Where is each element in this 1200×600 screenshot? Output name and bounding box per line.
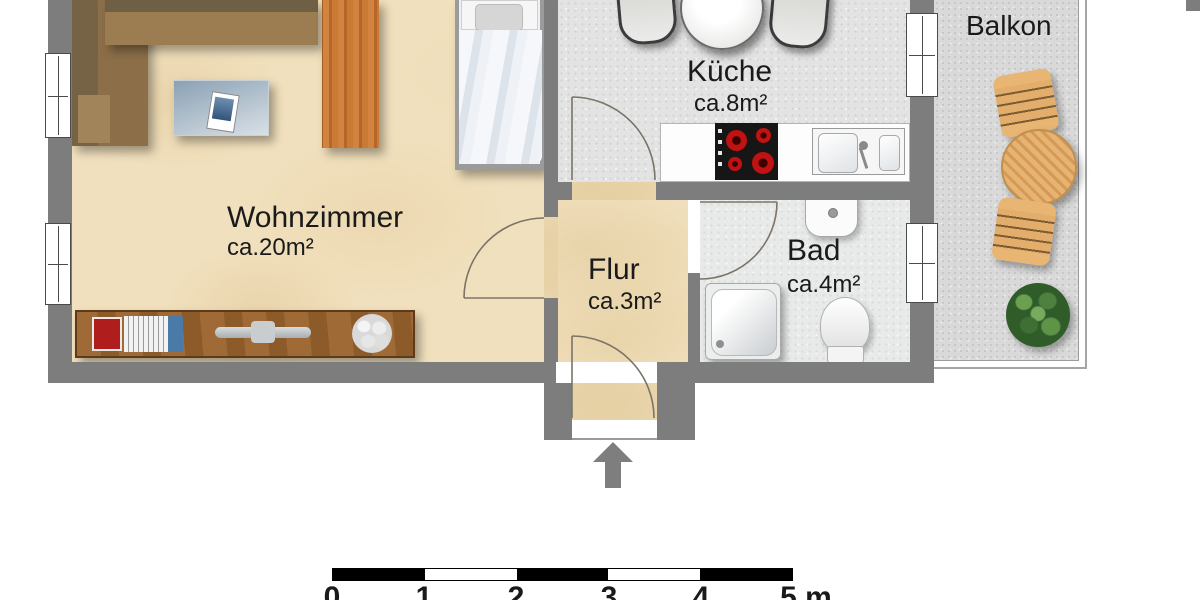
scale-segment: [517, 569, 609, 580]
bad-area: ca.4m²: [787, 273, 860, 297]
flur-label: Flur: [588, 255, 640, 285]
wohnzimmer-label: Wohnzimmer: [227, 203, 403, 233]
scale-label-5m: 5 m: [780, 583, 832, 600]
door-wohnzimmer-arc: [464, 218, 544, 298]
scale-label-2: 2: [508, 583, 525, 600]
scale-label-1: 1: [416, 583, 433, 600]
entrance-arrow-shaft: [605, 462, 621, 488]
kueche-area: ca.8m²: [694, 92, 767, 116]
scale-segment: [333, 569, 425, 580]
door-bad-arc: [700, 202, 777, 279]
bad-label: Bad: [787, 236, 840, 266]
kueche-label: Küche: [687, 57, 772, 87]
entrance-arrow-head: [593, 442, 633, 462]
scale-segment: [700, 569, 792, 580]
scale-label-0: 0: [324, 583, 341, 600]
scale-label-3: 3: [601, 583, 618, 600]
scale-bar: [332, 568, 793, 581]
door-entrance-arc: [572, 336, 654, 418]
wohnzimmer-area: ca.20m²: [227, 236, 314, 260]
balkon-label: Balkon: [966, 12, 1052, 40]
door-kueche-arc: [572, 97, 655, 180]
scale-segment: [425, 569, 517, 580]
flur-area: ca.3m²: [588, 290, 661, 314]
floor-plan: Wohnzimmer ca.20m² Küche ca.8m² Flur ca.…: [0, 0, 1200, 600]
scale-label-4: 4: [693, 583, 710, 600]
scale-segment: [608, 569, 700, 580]
